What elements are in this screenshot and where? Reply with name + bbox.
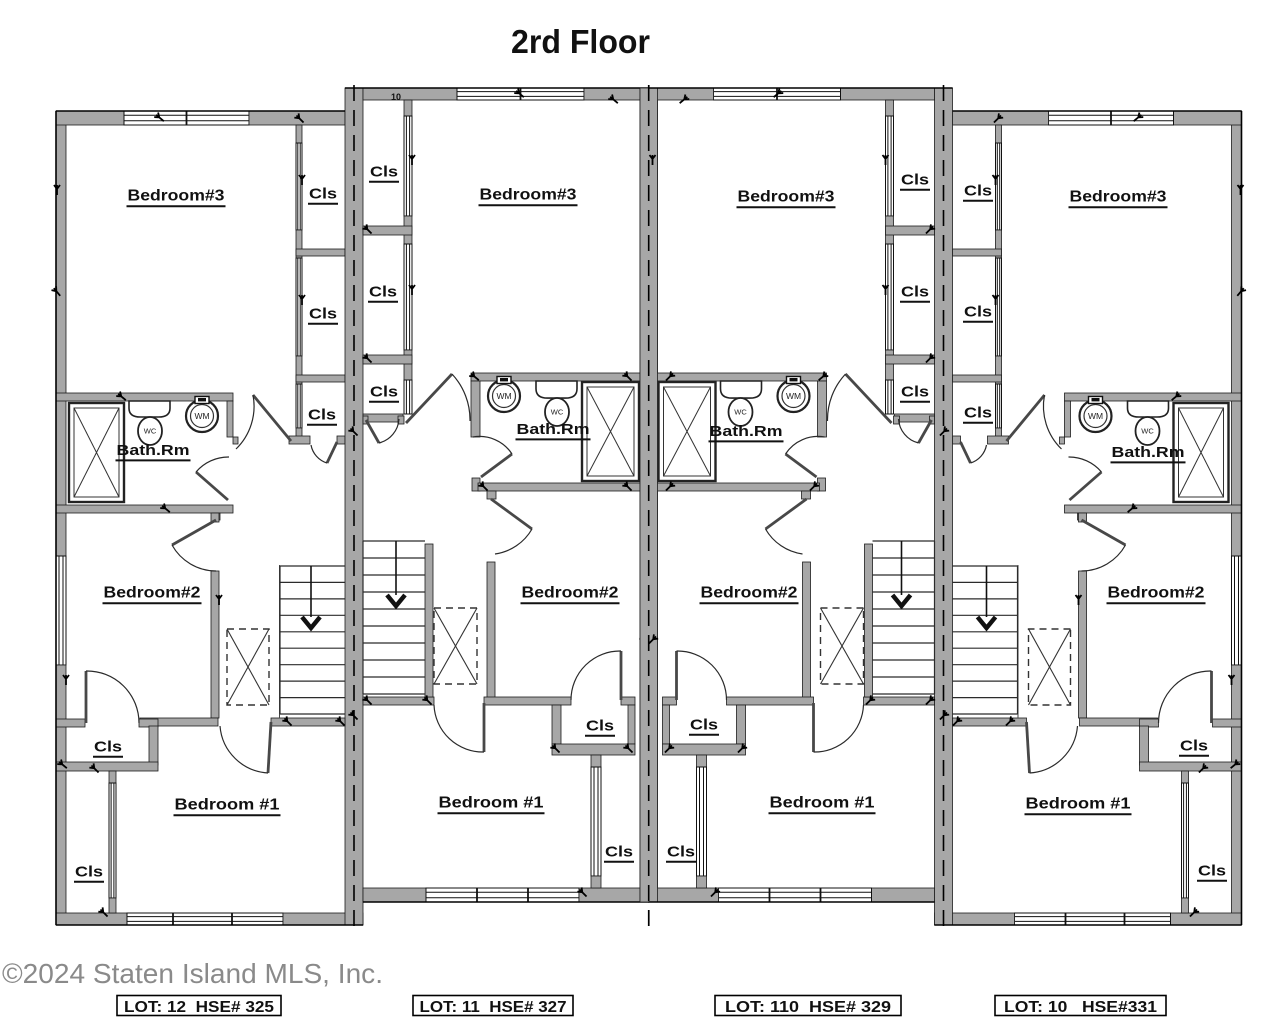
svg-text:LOT: 11 HSE# 327: LOT: 11 HSE# 327	[420, 999, 567, 1016]
svg-text:2rd Floor: 2rd Floor	[511, 23, 650, 60]
svg-text:Bath.Rm: Bath.Rm	[517, 422, 590, 438]
svg-text:Bedroom#2: Bedroom#2	[522, 585, 619, 602]
svg-text:Cls: Cls	[308, 406, 336, 423]
svg-text:Bedroom #1: Bedroom #1	[439, 795, 544, 812]
svg-text:WC: WC	[734, 408, 747, 417]
svg-text:Cls: Cls	[309, 185, 337, 202]
svg-text:Bath.Rm: Bath.Rm	[710, 424, 783, 440]
svg-text:Bedroom#2: Bedroom#2	[1108, 585, 1205, 602]
svg-text:10: 10	[391, 92, 401, 102]
svg-text:©2024 Staten Island MLS, Inc.: ©2024 Staten Island MLS, Inc.	[2, 958, 383, 989]
svg-text:Bedroom#2: Bedroom#2	[104, 585, 201, 602]
svg-text:Cls: Cls	[690, 716, 718, 733]
svg-text:Cls: Cls	[964, 303, 992, 320]
svg-text:WM: WM	[1088, 411, 1103, 421]
svg-text:Cls: Cls	[369, 283, 397, 300]
svg-text:WC: WC	[551, 408, 564, 417]
svg-text:Bedroom#3: Bedroom#3	[128, 188, 225, 205]
svg-text:Bedroom #1: Bedroom #1	[1026, 796, 1131, 813]
svg-text:LOT: 10 HSE#331: LOT: 10 HSE#331	[1004, 999, 1157, 1016]
svg-text:Cls: Cls	[964, 182, 992, 199]
svg-text:Cls: Cls	[1198, 862, 1226, 879]
svg-text:LOT: 110 HSE# 329: LOT: 110 HSE# 329	[725, 999, 891, 1016]
svg-text:Bedroom#3: Bedroom#3	[1070, 189, 1167, 206]
svg-text:Cls: Cls	[901, 171, 929, 188]
svg-text:Cls: Cls	[370, 383, 398, 400]
svg-text:Bedroom#2: Bedroom#2	[701, 585, 798, 602]
svg-text:Bath.Rm: Bath.Rm	[117, 443, 190, 459]
svg-text:Bath.Rm: Bath.Rm	[1112, 445, 1185, 461]
svg-text:WC: WC	[1141, 427, 1154, 436]
svg-text:Bedroom#3: Bedroom#3	[480, 187, 577, 204]
svg-text:Cls: Cls	[964, 404, 992, 421]
svg-text:Cls: Cls	[901, 283, 929, 300]
svg-text:Bedroom #1: Bedroom #1	[770, 795, 875, 812]
svg-text:Bedroom#3: Bedroom#3	[738, 189, 835, 206]
svg-text:Cls: Cls	[75, 863, 103, 880]
svg-text:Cls: Cls	[667, 843, 695, 860]
svg-text:WM: WM	[194, 411, 209, 421]
svg-text:Bedroom #1: Bedroom #1	[175, 797, 280, 814]
svg-text:Cls: Cls	[586, 717, 614, 734]
svg-text:WC: WC	[144, 427, 157, 436]
svg-text:Cls: Cls	[370, 163, 398, 180]
svg-text:WM: WM	[496, 391, 511, 401]
svg-text:WM: WM	[786, 391, 801, 401]
svg-text:Cls: Cls	[1180, 737, 1208, 754]
svg-text:Cls: Cls	[94, 738, 122, 755]
svg-text:Cls: Cls	[309, 305, 337, 322]
svg-text:LOT: 12 HSE# 325: LOT: 12 HSE# 325	[124, 999, 274, 1016]
svg-text:Cls: Cls	[901, 383, 929, 400]
svg-text:Cls: Cls	[605, 843, 633, 860]
